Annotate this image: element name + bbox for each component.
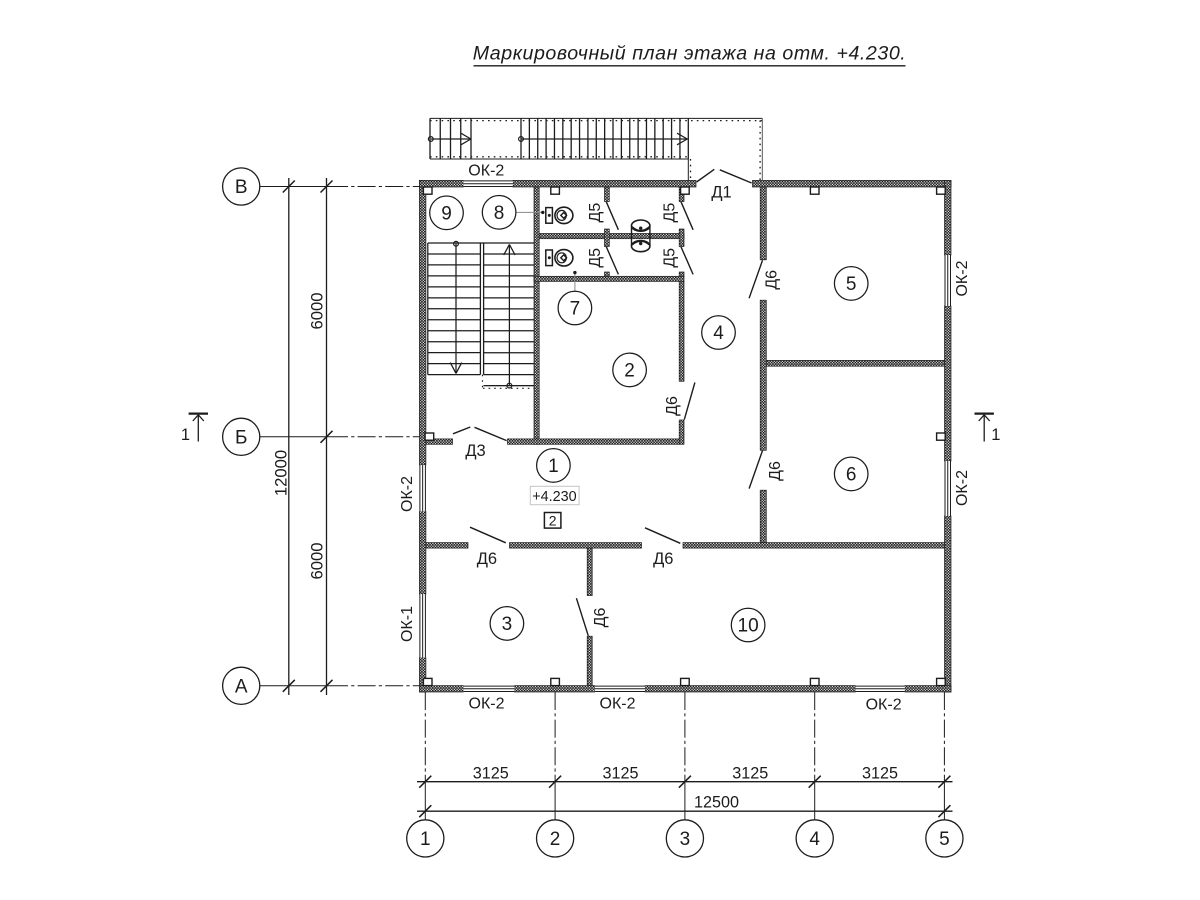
svg-text:2: 2 xyxy=(549,512,557,528)
svg-text:3125: 3125 xyxy=(732,764,768,782)
svg-text:9: 9 xyxy=(441,203,452,224)
svg-text:В: В xyxy=(235,177,248,198)
svg-text:Д5: Д5 xyxy=(587,203,604,223)
svg-text:7: 7 xyxy=(570,299,581,320)
svg-text:ОК-2: ОК-2 xyxy=(469,695,505,712)
svg-text:Д6: Д6 xyxy=(767,461,784,481)
svg-text:1: 1 xyxy=(420,829,431,850)
svg-text:А: А xyxy=(235,676,248,697)
svg-text:3: 3 xyxy=(502,614,513,635)
svg-text:12000: 12000 xyxy=(272,450,291,496)
svg-text:2: 2 xyxy=(550,829,561,850)
svg-text:ОК-2: ОК-2 xyxy=(954,470,971,506)
svg-text:Д5: Д5 xyxy=(587,248,604,268)
svg-text:12500: 12500 xyxy=(694,794,739,812)
svg-text:6: 6 xyxy=(846,465,857,486)
svg-text:Д6: Д6 xyxy=(477,550,497,568)
svg-text:3125: 3125 xyxy=(602,764,638,782)
svg-text:10: 10 xyxy=(738,616,759,637)
svg-text:ОК-2: ОК-2 xyxy=(866,696,902,713)
svg-text:6000: 6000 xyxy=(308,543,327,580)
svg-text:+4.230: +4.230 xyxy=(532,489,576,505)
svg-text:4: 4 xyxy=(713,323,724,344)
svg-text:6000: 6000 xyxy=(308,293,327,330)
svg-text:Д6: Д6 xyxy=(764,270,781,290)
svg-text:Д3: Д3 xyxy=(465,442,485,460)
svg-text:4: 4 xyxy=(809,829,820,850)
svg-text:ОК-2: ОК-2 xyxy=(600,695,636,712)
svg-text:Маркировочный план этажа на от: Маркировочный план этажа на отм. +4.230. xyxy=(473,42,907,64)
svg-text:1: 1 xyxy=(548,456,559,477)
svg-text:5: 5 xyxy=(846,274,857,295)
svg-text:Д5: Д5 xyxy=(661,203,678,223)
svg-text:ОК-2: ОК-2 xyxy=(468,162,504,179)
svg-text:Д1: Д1 xyxy=(711,184,731,202)
svg-text:3: 3 xyxy=(680,829,691,850)
svg-text:ОК-2: ОК-2 xyxy=(399,476,416,512)
svg-text:8: 8 xyxy=(494,203,505,224)
svg-text:3125: 3125 xyxy=(862,764,898,782)
svg-text:1: 1 xyxy=(181,426,190,444)
svg-text:Д6: Д6 xyxy=(592,608,609,628)
svg-text:3125: 3125 xyxy=(473,764,509,782)
svg-text:5: 5 xyxy=(939,829,950,850)
svg-text:Д6: Д6 xyxy=(664,396,681,416)
svg-text:Б: Б xyxy=(235,427,247,448)
svg-text:ОК-2: ОК-2 xyxy=(954,260,971,296)
svg-text:1: 1 xyxy=(991,426,1000,444)
svg-text:2: 2 xyxy=(624,361,635,382)
svg-text:Д6: Д6 xyxy=(653,550,673,568)
svg-text:ОК-1: ОК-1 xyxy=(399,606,416,642)
svg-text:Д5: Д5 xyxy=(661,248,678,268)
